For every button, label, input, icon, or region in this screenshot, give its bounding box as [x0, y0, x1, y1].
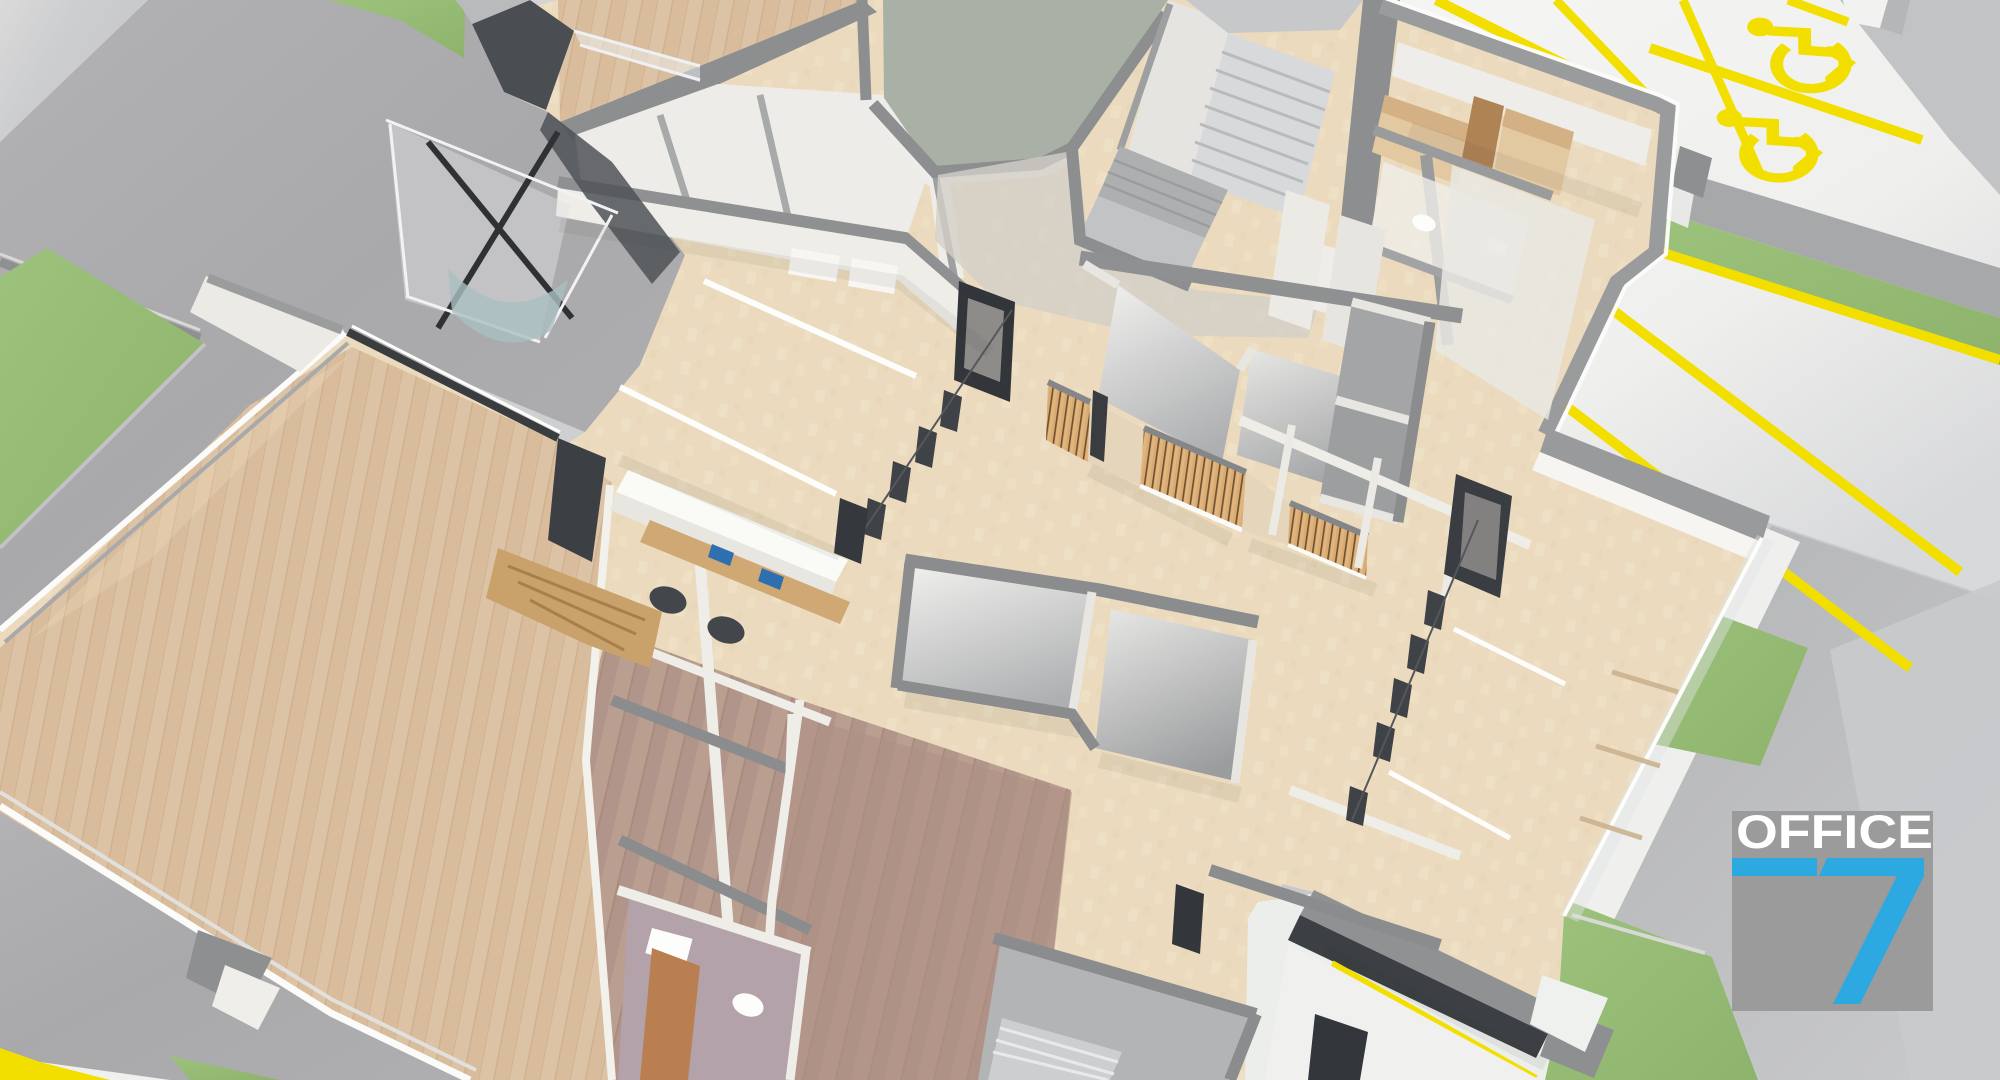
svg-text:OFFICE: OFFICE [1736, 805, 1933, 858]
